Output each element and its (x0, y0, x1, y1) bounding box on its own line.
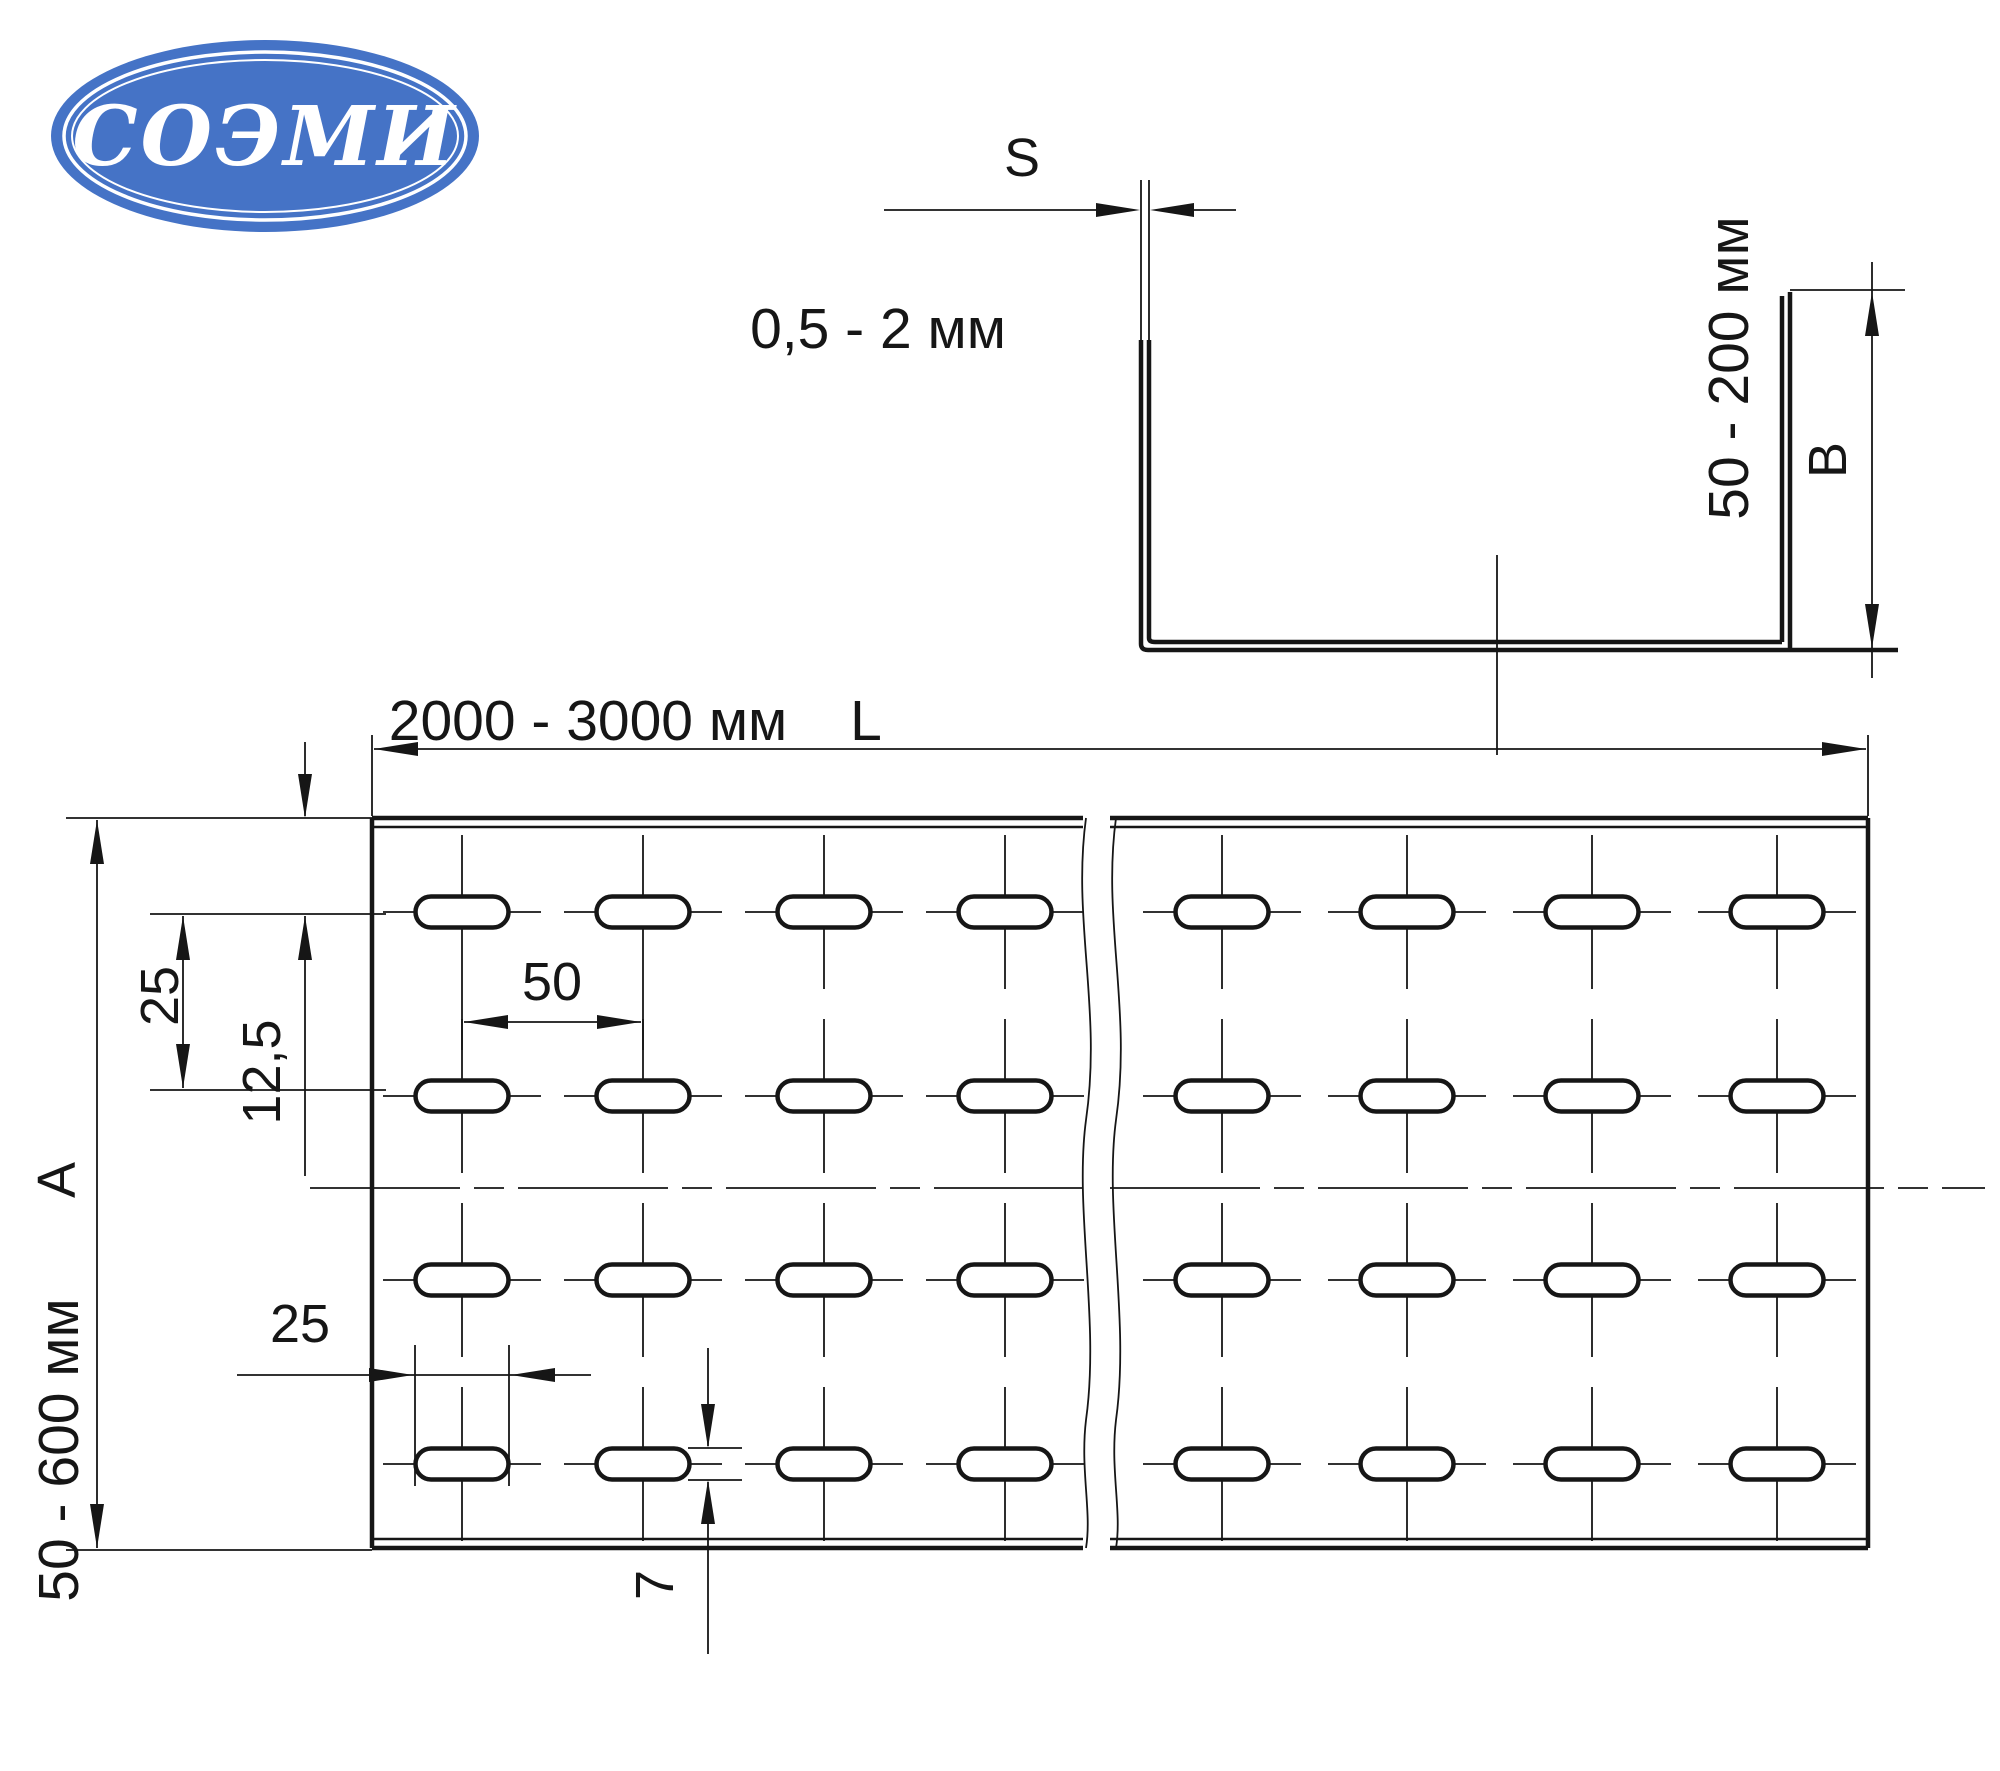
length-range: 2000 - 3000 мм (389, 689, 787, 753)
thickness-label: S (1004, 128, 1040, 188)
slot-hole (383, 1203, 541, 1357)
logo-text: СОЭМИ (72, 89, 457, 185)
slot-hole (383, 1387, 541, 1541)
slot-hole (564, 1203, 722, 1357)
drawing-sheet: СОЭМИ S 0,5 - 2 мм (0, 0, 2000, 1771)
slot-hole (745, 1019, 903, 1173)
break-lines (1082, 818, 1121, 1548)
channel-profile (1141, 292, 1898, 650)
height-range: 50 - 200 мм (1697, 216, 1761, 519)
slot-hole (1328, 1203, 1486, 1357)
slot-hole (564, 1387, 722, 1541)
slot-hole (1698, 1203, 1856, 1357)
slot-length-value: 25 (270, 1294, 330, 1354)
slot-hole (1513, 1387, 1671, 1541)
height-label: B (1798, 442, 1858, 478)
slot-width-value: 7 (625, 1570, 685, 1600)
slot-hole (1698, 835, 1856, 989)
slot-hole (1698, 1387, 1856, 1541)
edge-offset-value: 12,5 (232, 1019, 292, 1124)
width-label: A (27, 1162, 87, 1198)
slot-hole (1143, 835, 1301, 989)
slot-hole (1698, 1019, 1856, 1173)
dim-thickness: S 0,5 - 2 мм (750, 128, 1236, 361)
technical-drawing: СОЭМИ S 0,5 - 2 мм (0, 0, 2000, 1771)
company-logo: СОЭМИ (51, 40, 479, 232)
hole-pitch-value: 50 (522, 952, 582, 1012)
length-label: L (850, 689, 882, 753)
plan-view: 2000 - 3000 мм L A 50 - 600 мм 25 12,5 (27, 689, 1985, 1654)
slot-hole (1143, 1387, 1301, 1541)
slot-hole (745, 835, 903, 989)
slot-hole (383, 1019, 541, 1173)
thickness-range: 0,5 - 2 мм (750, 297, 1006, 361)
dim-row-spacing: 25 (130, 916, 190, 1088)
dim-edge-offset: 12,5 (232, 742, 312, 1176)
tray-outline (372, 818, 1868, 1548)
slot-hole (1513, 835, 1671, 989)
slot-hole (926, 1203, 1084, 1357)
slot-hole (564, 835, 722, 1050)
cross-section-view: S 0,5 - 2 мм 50 - 200 мм B (750, 128, 1905, 755)
slot-hole (1513, 1019, 1671, 1173)
width-range: 50 - 600 мм (27, 1298, 91, 1601)
slot-hole (745, 1203, 903, 1357)
dim-height: 50 - 200 мм B (1697, 216, 1905, 678)
slot-hole (926, 1387, 1084, 1541)
slot-hole (745, 1387, 903, 1541)
slot-hole (1143, 1019, 1301, 1173)
row-spacing-value: 25 (130, 966, 190, 1026)
slot-hole (1143, 1203, 1301, 1357)
slot-hole (1328, 1019, 1486, 1173)
slot-hole (926, 835, 1084, 989)
dim-length: 2000 - 3000 мм L (372, 689, 1868, 816)
slot-hole (564, 1019, 722, 1173)
slot-hole (383, 835, 541, 1050)
slot-hole (1513, 1203, 1671, 1357)
thickness-extension-lines (1141, 180, 1149, 358)
slot-hole (926, 1019, 1084, 1173)
dim-hole-pitch: 50 (464, 952, 641, 1029)
dim-width: A 50 - 600 мм (27, 818, 372, 1602)
slot-hole (1328, 835, 1486, 989)
slot-hole (1328, 1387, 1486, 1541)
dim-slot-length: 25 (237, 1294, 591, 1486)
